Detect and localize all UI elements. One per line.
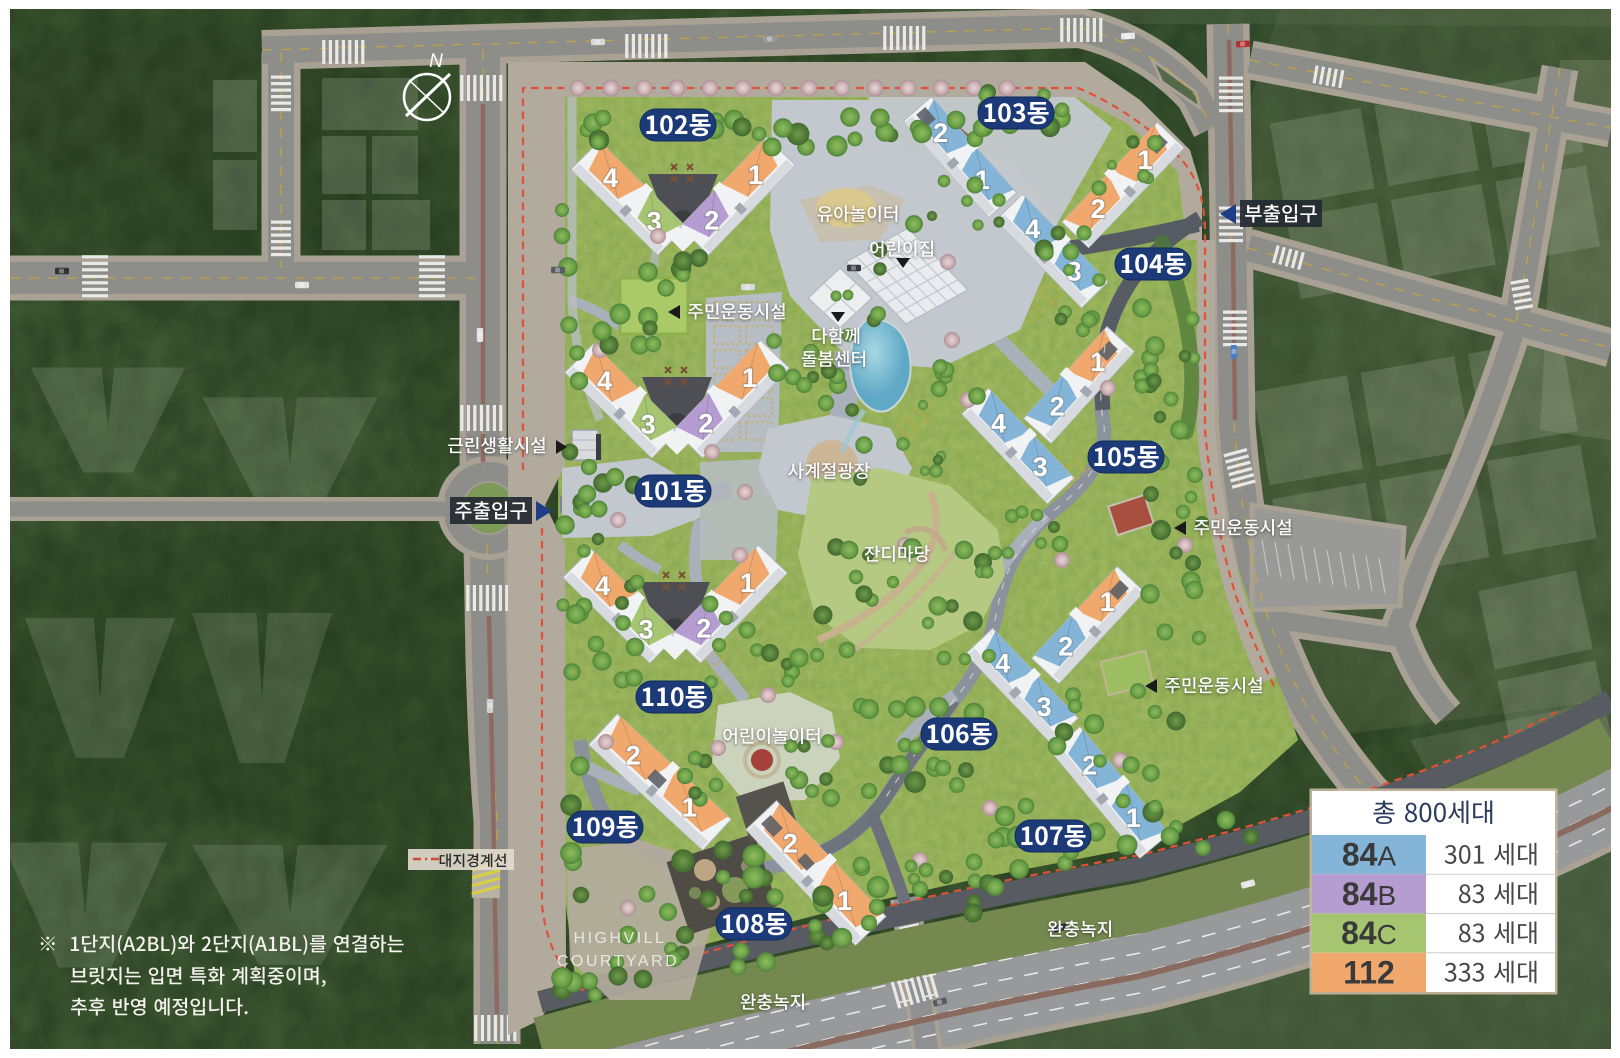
svg-text:1: 1 — [740, 568, 755, 598]
svg-text:4: 4 — [595, 571, 610, 601]
svg-text:COURTYARD: COURTYARD — [557, 953, 679, 970]
svg-text:4: 4 — [1025, 214, 1040, 244]
svg-text:2: 2 — [698, 409, 713, 439]
svg-text:2: 2 — [1091, 194, 1106, 224]
svg-text:1: 1 — [837, 886, 852, 916]
svg-text:4: 4 — [603, 163, 618, 193]
svg-text:1: 1 — [748, 160, 763, 190]
svg-text:4: 4 — [597, 366, 612, 396]
svg-text:2: 2 — [696, 614, 711, 644]
svg-text:N: N — [429, 51, 443, 72]
svg-text:2: 2 — [626, 740, 641, 770]
svg-text:2: 2 — [783, 829, 798, 859]
svg-text:84B: 84B — [1342, 876, 1396, 912]
svg-text:1: 1 — [1126, 803, 1141, 833]
svg-text:112: 112 — [1343, 954, 1395, 990]
svg-text:84A: 84A — [1342, 837, 1397, 873]
svg-text:2: 2 — [1058, 632, 1073, 662]
svg-text:HIGHVILL: HIGHVILL — [574, 930, 667, 947]
svg-text:2: 2 — [1082, 751, 1097, 781]
svg-text:4: 4 — [995, 649, 1010, 679]
svg-text:2: 2 — [1050, 392, 1065, 422]
svg-text:2: 2 — [704, 206, 719, 236]
svg-text:3: 3 — [639, 614, 654, 644]
svg-text:4: 4 — [991, 409, 1006, 439]
svg-text:1: 1 — [742, 363, 757, 393]
svg-text:3: 3 — [641, 409, 656, 439]
svg-text:3: 3 — [1033, 452, 1048, 482]
svg-text:3: 3 — [1037, 692, 1052, 722]
svg-text:2: 2 — [933, 118, 948, 148]
svg-text:84C: 84C — [1341, 915, 1397, 951]
